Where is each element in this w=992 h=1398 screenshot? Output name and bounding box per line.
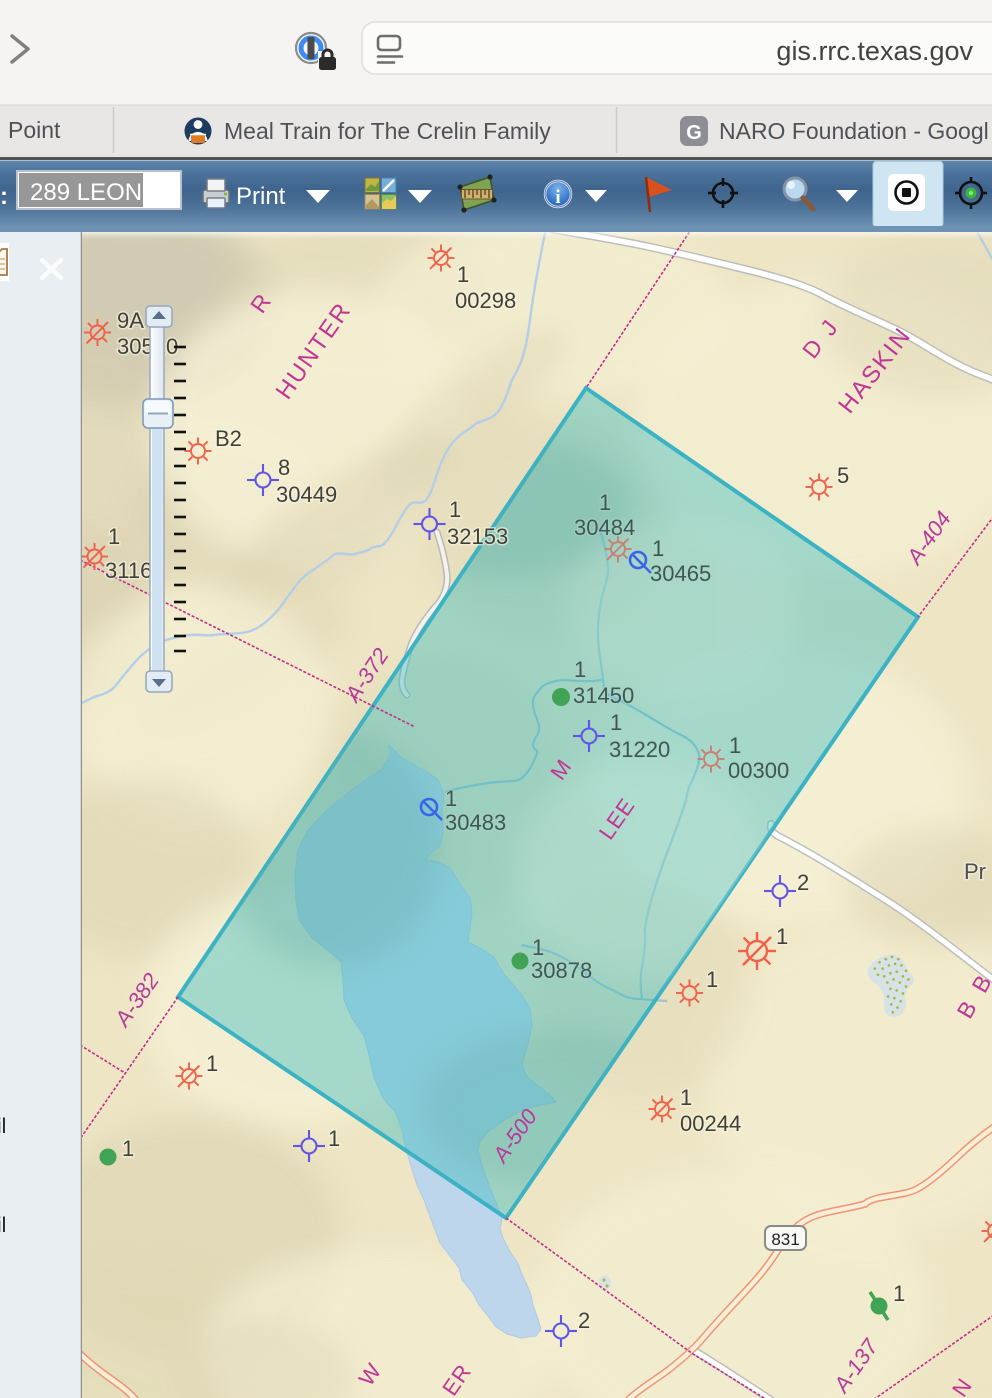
svg-text:00244: 00244 — [680, 1111, 741, 1136]
svg-text:i: i — [555, 187, 560, 208]
svg-text:1: 1 — [776, 924, 788, 949]
svg-text:Pr: Pr — [964, 859, 986, 884]
svg-text:00300: 00300 — [728, 758, 789, 783]
svg-text:2: 2 — [797, 870, 809, 895]
svg-text:1: 1 — [206, 1051, 218, 1076]
svg-text:1: 1 — [449, 497, 461, 522]
svg-text:32153: 32153 — [447, 524, 508, 549]
svg-text:NARO Foundation - Googl: NARO Foundation - Googl — [719, 118, 989, 144]
svg-text:il: il — [0, 1115, 6, 1138]
svg-text:30483: 30483 — [445, 810, 506, 835]
svg-text:1: 1 — [532, 935, 544, 960]
svg-text:289 LEON: 289 LEON — [30, 179, 142, 206]
svg-text:1: 1 — [893, 1281, 905, 1306]
svg-text:1: 1 — [610, 710, 622, 735]
svg-text:1: 1 — [706, 967, 718, 992]
svg-text:1: 1 — [729, 733, 741, 758]
svg-text:30510: 30510 — [117, 334, 178, 359]
svg-text:5: 5 — [837, 463, 849, 488]
svg-text:831: 831 — [771, 1230, 799, 1249]
svg-text:8: 8 — [278, 455, 290, 480]
svg-text:gis.rrc.texas.gov: gis.rrc.texas.gov — [776, 36, 973, 66]
svg-text:9A: 9A — [117, 308, 144, 333]
svg-text:1: 1 — [122, 1136, 134, 1161]
svg-text:30484: 30484 — [574, 515, 635, 540]
svg-text:00298: 00298 — [455, 288, 516, 313]
svg-text:Point: Point — [8, 117, 61, 143]
svg-text:1: 1 — [108, 524, 120, 549]
svg-text:2: 2 — [578, 1308, 590, 1333]
svg-text:G: G — [686, 122, 702, 144]
svg-text:30449: 30449 — [276, 482, 337, 507]
svg-text:1: 1 — [652, 536, 664, 561]
svg-text:1: 1 — [445, 786, 457, 811]
svg-text:B2: B2 — [215, 426, 242, 451]
svg-text::: : — [0, 183, 8, 210]
svg-text:1: 1 — [680, 1085, 692, 1110]
svg-text:1: 1 — [457, 262, 469, 287]
svg-text:il: il — [0, 1214, 6, 1237]
svg-text:Meal Train for The Crelin Fami: Meal Train for The Crelin Family — [224, 118, 551, 144]
svg-text:1: 1 — [574, 657, 586, 682]
svg-text:Print: Print — [236, 183, 286, 210]
svg-text:1: 1 — [328, 1126, 340, 1151]
svg-text:1: 1 — [599, 490, 611, 515]
svg-text:30878: 30878 — [531, 958, 592, 983]
svg-text:30465: 30465 — [650, 561, 711, 586]
svg-text:31220: 31220 — [609, 737, 670, 762]
svg-text:31450: 31450 — [573, 683, 634, 708]
